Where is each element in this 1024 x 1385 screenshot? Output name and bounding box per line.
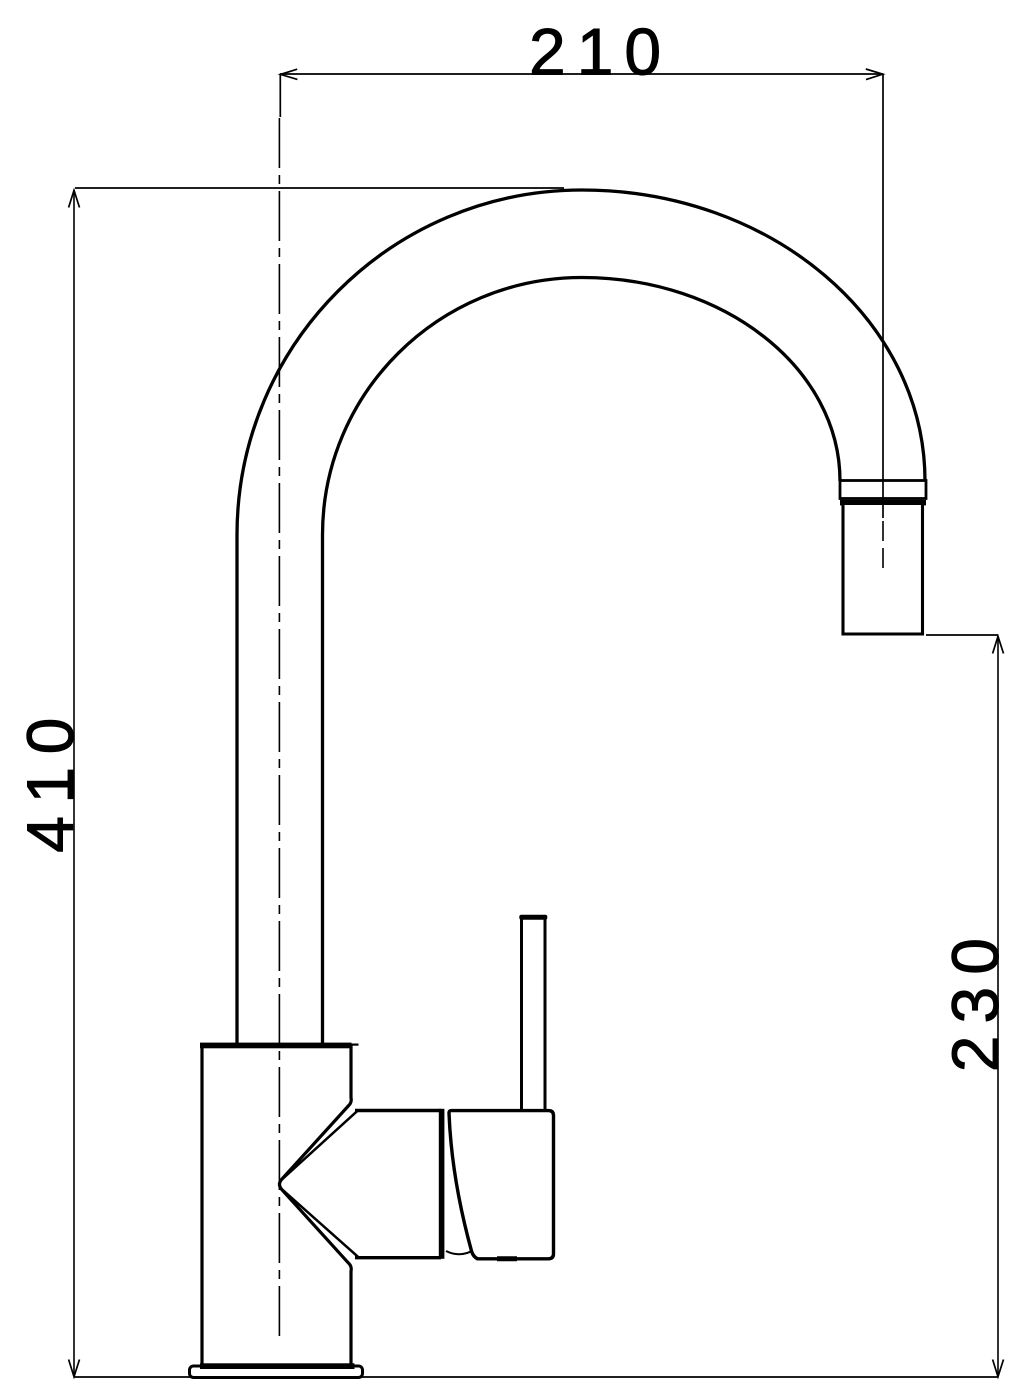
- svg-text:230: 230: [938, 926, 1012, 1072]
- svg-text:410: 410: [13, 705, 87, 853]
- svg-text:210: 210: [529, 15, 672, 89]
